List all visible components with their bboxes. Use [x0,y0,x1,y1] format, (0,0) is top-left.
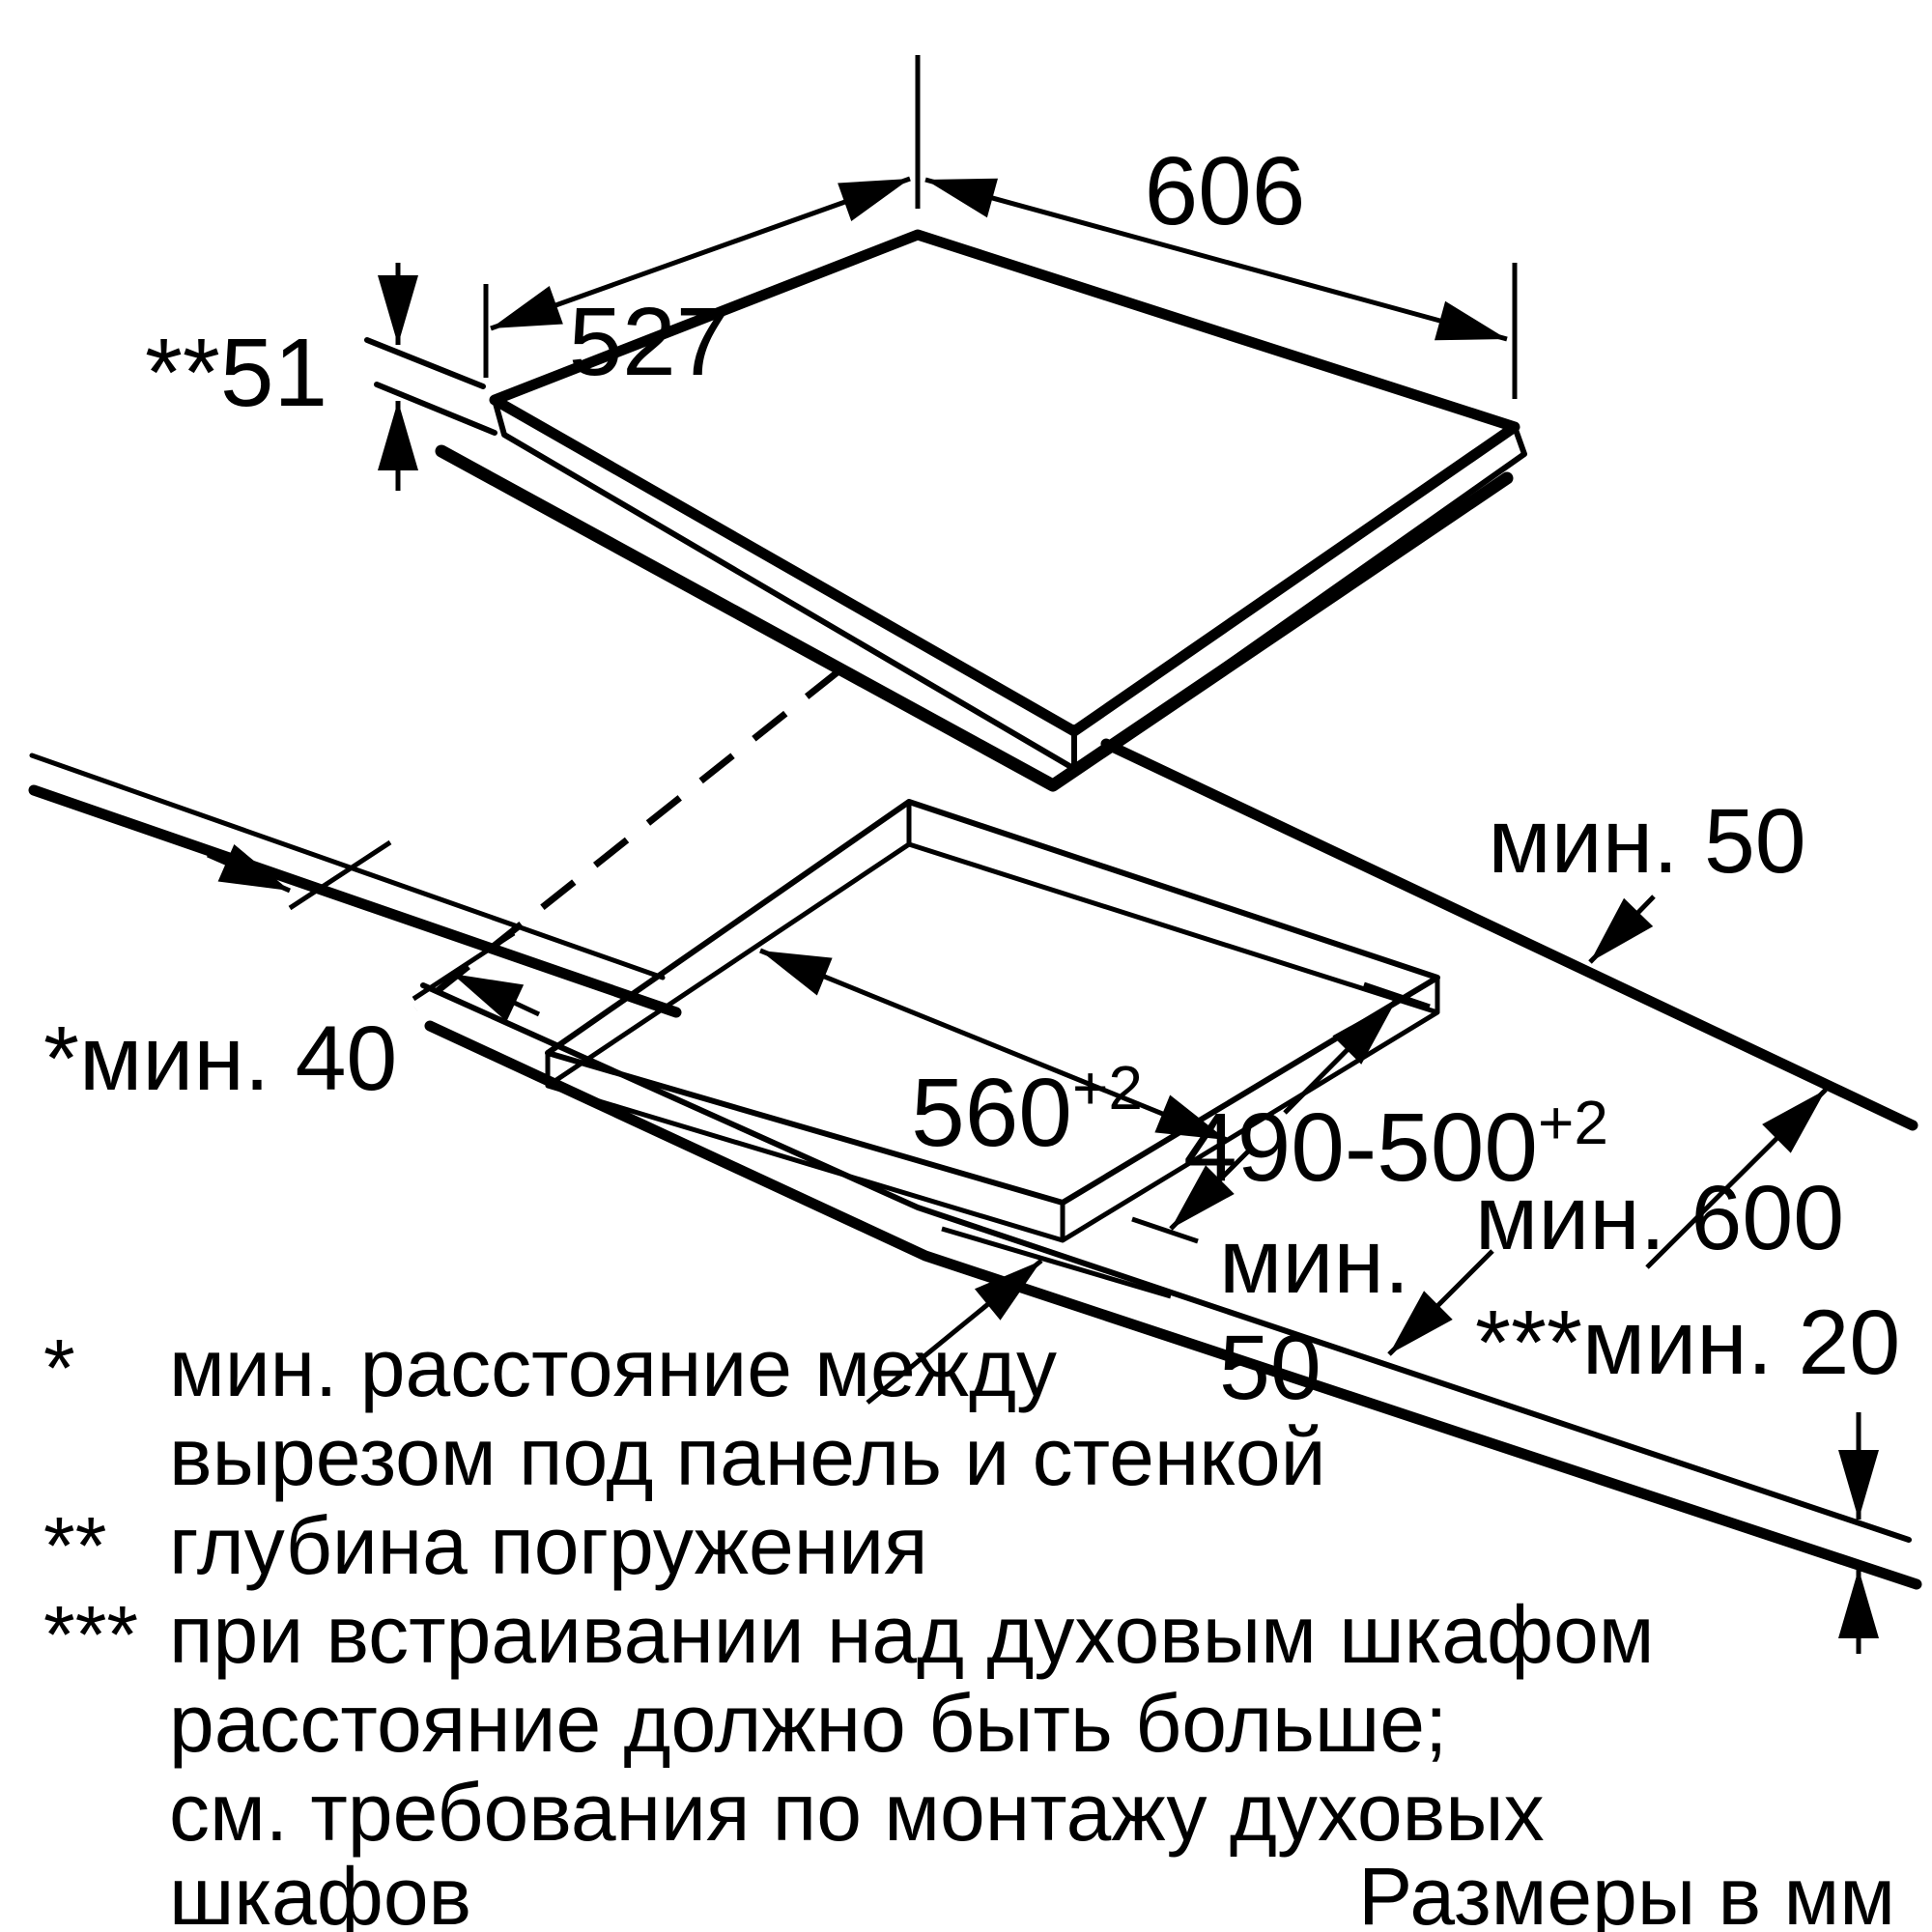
dim-min-front-clearance-label-line2: 50 [1219,1317,1321,1419]
dim-immersion-depth-label: **51 [145,319,327,427]
diagram-canvas: 527 606 **51 560+2 [0,0,1932,1932]
dim-gap-below-label: ***мин. 20 [1475,1292,1900,1394]
dim-panel-depth-label: 527 [569,288,730,396]
panel-glass-edge [495,400,1524,772]
dim-wall-clearance-label: *мин. 40 [43,1008,397,1110]
installation-diagram: 527 606 **51 560+2 [0,0,1932,1932]
tick-cutout-depth-lower [1132,1219,1198,1241]
footnote3-line3: см. требования по монтажу духовых [169,1767,1545,1858]
arrow-wall-clearance-right [452,974,539,1014]
footnote1-marker: * [43,1322,75,1413]
footnote3-line2: расстояние должно быть больше; [169,1678,1447,1769]
footnote3-line4: шкафов [169,1851,471,1932]
footnotes: * мин. расстояние между вырезом под пане… [43,1322,1895,1932]
dim-panel-width-label: 606 [1145,137,1306,245]
footnote3-line1: при встраивании над духовым шкафом [169,1589,1655,1680]
ext-line-bottom-surface [377,384,495,433]
footnote3-marker: *** [43,1589,138,1680]
footnote2-line1: глубина погружения [169,1500,928,1591]
panel-body-bottom [441,451,1507,785]
wall-line-thick [34,790,676,1012]
wall-line-thin [32,755,663,978]
dim-min-back-clearance-label: мин. 50 [1488,790,1805,893]
ext-line-top-surface [367,340,483,386]
footnote1-line2: вырезом под панель и стенкой [169,1411,1326,1502]
dim-cutout-width-label: 560+2 [911,1053,1143,1167]
arrow-min-back-clearance [1590,896,1654,962]
footnote2-marker: ** [43,1500,106,1591]
footnote1-line1: мин. расстояние между [169,1322,1057,1413]
units-note: Размеры в мм [1358,1851,1895,1932]
dim-min-front-clearance-label-line1: мин. [1219,1210,1409,1313]
